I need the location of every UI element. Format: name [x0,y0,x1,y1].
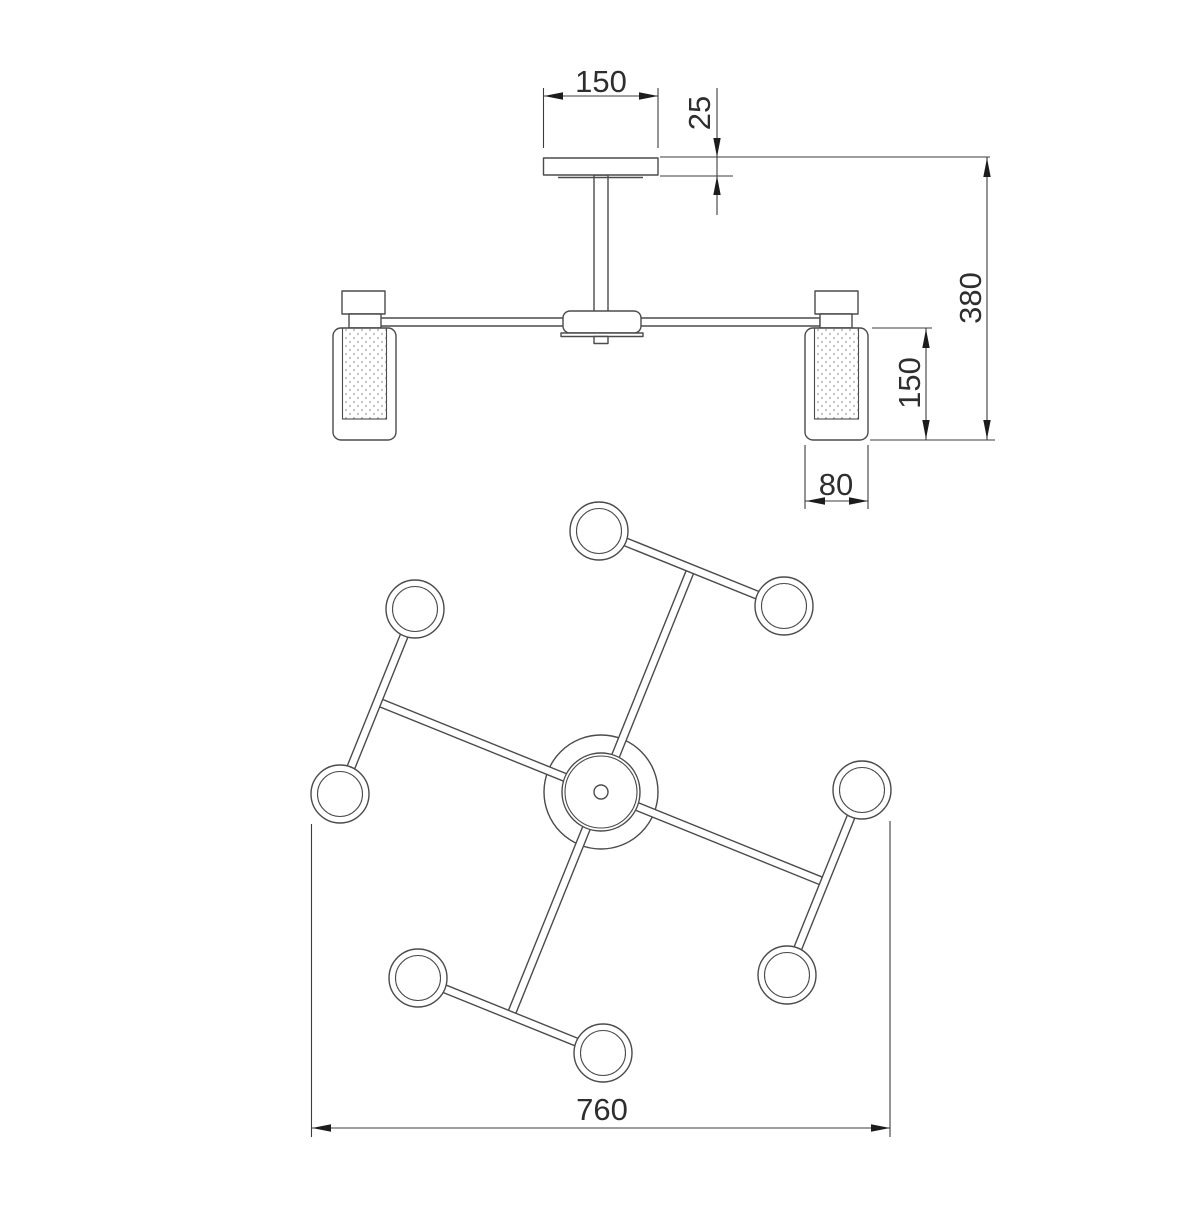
shade-circle [574,1024,632,1082]
dim-label-canopy-width: 150 [575,64,627,99]
shade-circle [389,949,447,1007]
arrowhead-left [544,92,563,99]
lamp-right [805,291,868,440]
lamp-right-neck [820,314,852,328]
shade-circle [755,577,813,635]
arrowhead-left [312,1124,331,1132]
dimension-drawing-svg: 150 25 380 150 [0,0,1200,1200]
arrowhead-down [983,420,990,439]
lamp-left-glass-diffuser [343,328,387,419]
shade-circle [833,761,891,819]
dim-overall-height: 380 [870,157,995,440]
shade-circle [386,580,444,638]
hub-disk [562,753,640,831]
technical-drawing-canvas: 150 25 380 150 [0,0,1200,1200]
dim-canopy-width: 150 [544,64,659,148]
lamp-left-socket-cap [342,291,385,314]
hub-center-hole [594,785,608,799]
shade-circle [570,502,628,560]
dim-shade-diameter: 80 [805,445,868,509]
front-elevation-view: 150 25 380 150 [333,64,995,509]
lamp-right-socket-cap [815,291,858,314]
arm-left [380,318,564,326]
lamp-right-glass-diffuser [815,328,859,419]
hanger-rod [594,175,608,312]
dim-label-shade-height: 150 [892,357,927,409]
arrowhead-up [983,158,990,177]
arrowhead-right [639,92,658,99]
arrowhead-down [922,420,929,439]
arrowhead-up [922,329,929,348]
dim-canopy-height: 25 [660,88,990,215]
dim-label-shade-diameter: 80 [819,467,853,502]
arm-right [640,318,820,326]
shade-circle [758,946,816,1004]
center-body [561,311,643,344]
ceiling-canopy [544,158,659,175]
arrowhead-up [713,176,720,195]
arrowhead-down [713,138,720,157]
dim-label-overall-height: 380 [953,272,988,324]
dim-shade-height: 150 [872,328,932,440]
shade-circle [311,765,369,823]
lamp-left-neck [349,314,381,328]
dim-label-canopy-height: 25 [682,96,717,130]
center-body-housing [563,311,641,333]
center-body-nipple [594,337,608,344]
dim-label-overall-width: 760 [576,1092,628,1127]
lamp-left [333,291,396,440]
arrowhead-right [871,1124,890,1132]
top-plan-view: 760 [311,502,891,1137]
